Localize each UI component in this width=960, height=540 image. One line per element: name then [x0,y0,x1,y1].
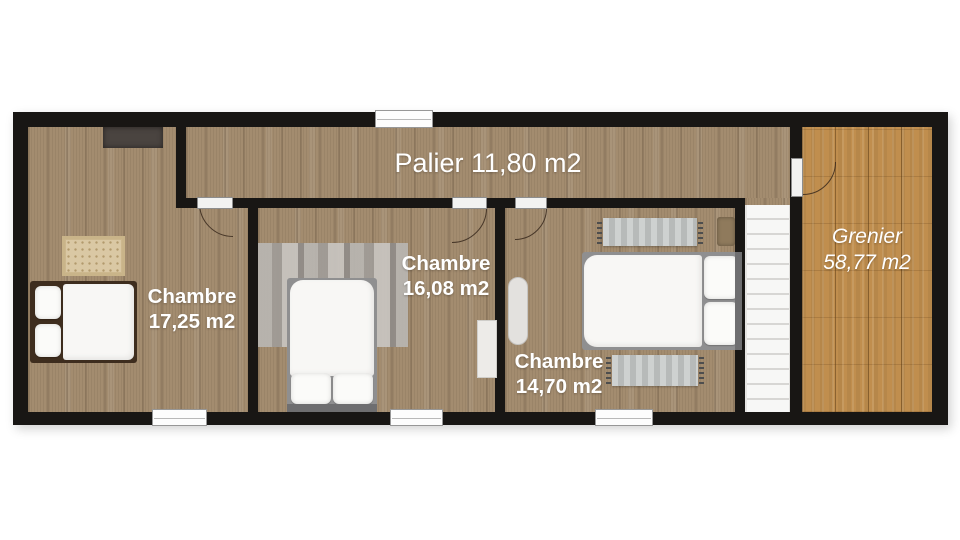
room-label-palier: Palier 11,80 m2 [186,148,790,179]
floor-plan-page: Palier 11,80 m2 Chambre 17,25 m2 Chambre… [0,0,960,540]
door-arc-chambre3 [515,208,547,240]
door-arc-grenier [803,162,836,195]
window-bottom-middle-icon [390,409,443,426]
grenier-area: 58,77 m2 [802,250,932,276]
palier-label-text: Palier 11,80 m2 [186,148,790,179]
runner-rug-top [603,218,697,246]
floor-plan: Palier 11,80 m2 Chambre 17,25 m2 Chambre… [13,112,948,425]
room-label-chambre2: Chambre 16,08 m2 [346,251,546,301]
window-bottom-right-icon [595,409,653,426]
chambre1-area: 17,25 m2 [92,309,292,334]
chambre3-area: 14,70 m2 [459,374,659,399]
window-top-icon [375,110,433,128]
room-label-chambre3: Chambre 14,70 m2 [459,349,659,399]
chambre1-name: Chambre [92,284,292,309]
door-chambre2-icon [452,197,487,209]
rug-ornate [62,236,125,276]
chambre2-name: Chambre [346,251,546,276]
door-arc-chambre2 [452,208,487,243]
nightstand [717,217,735,246]
door-chambre1-icon [197,197,233,209]
room-label-chambre1: Chambre 17,25 m2 [92,284,292,334]
staircase [745,205,790,412]
door-chambre3-icon [515,197,547,209]
bed-chambre3 [582,252,742,350]
door-grenier-icon [791,158,803,197]
chambre2-area: 16,08 m2 [346,276,546,301]
chambre3-name: Chambre [459,349,659,374]
grenier-name: Grenier [802,224,932,250]
room-label-grenier: Grenier 58,77 m2 [802,224,932,276]
window-bottom-left-icon [152,409,207,426]
chimney-block [103,127,163,148]
